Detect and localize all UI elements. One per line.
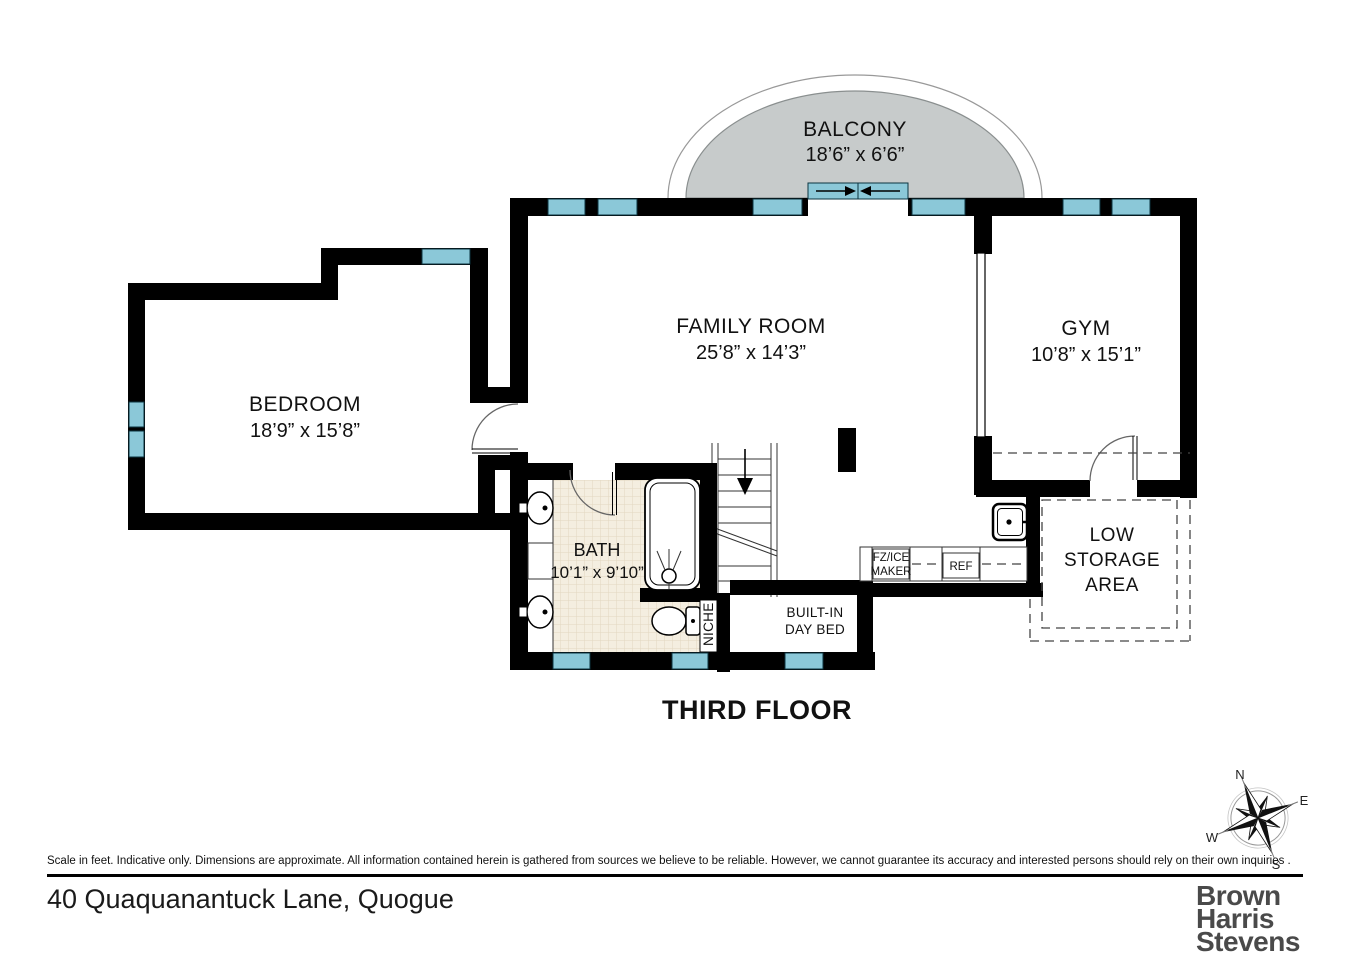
floor-plan-drawing: BALCONY 18’6” x 6’6” [0,0,1350,956]
floor-plan-page: BALCONY 18’6” x 6’6” [0,0,1350,956]
compass-east-label: E [1300,793,1309,808]
wall-segment [700,463,717,603]
window [422,249,470,264]
low-storage-label-3: AREA [1085,575,1139,596]
wall-segment [128,513,528,530]
niche-label: NICHE [701,602,716,646]
window [129,402,144,427]
sink-drain [543,610,548,615]
family-room-dims: 25’8” x 14’3” [696,342,806,364]
family-room-name: FAMILY ROOM [676,315,825,338]
sink-icon [527,492,553,524]
floor-title: THIRD FLOOR [662,695,852,725]
wall-segment [1137,480,1180,497]
day-bed-label-2: DAY BED [785,622,845,637]
bedroom-dims: 18’9” x 15’8” [250,420,360,442]
wall-segment [478,470,495,520]
window [753,199,802,215]
brand-line: Stevens [1196,930,1300,953]
low-storage-label-1: LOW [1090,525,1135,546]
wall-segment [838,428,856,472]
window [912,199,965,215]
wall-segment [470,248,488,403]
wall-segment [976,480,1090,497]
gym-name: GYM [1061,317,1110,340]
window [548,199,585,215]
wall-segment [860,583,1043,597]
bedroom-name: BEDROOM [249,393,361,416]
window [129,431,144,457]
window [553,653,590,669]
bar-sink-drain [1006,519,1011,524]
sink-faucet [519,607,527,617]
wet-bar-counter: FZ/ICE MAKER REF [860,504,1030,581]
window [1112,199,1150,215]
gym-dims: 10’8” x 15’1” [1031,344,1141,366]
balcony-dims: 18’6” x 6’6” [806,144,905,166]
toilet-tank-dot [691,619,695,623]
compass-west-label: W [1206,830,1219,845]
wall-segment [974,216,992,254]
window [785,653,823,669]
property-address: 40 Quaquanantuck Lane, Quogue [47,884,454,915]
wall-segment [730,580,873,595]
sink-icon [527,596,553,628]
disclaimer-text: Scale in feet. Indicative only. Dimensio… [47,855,1303,867]
low-storage-label-2: STORAGE [1064,550,1160,571]
window [1063,199,1100,215]
stairs-down-arrowhead [737,478,753,495]
wall-segment [857,595,873,655]
partition-thin-wall [977,253,985,437]
sink-faucet [519,503,527,513]
sliding-door-opening [808,198,908,216]
bath-dims: 10’1” x 9’10” [550,563,644,582]
shower-head-icon [662,569,676,583]
ref-label: REF [950,561,973,573]
wall-segment [510,198,528,403]
sink-drain [543,506,548,511]
brown-harris-stevens-logo: Brown Harris Stevens [1196,884,1300,953]
balcony: BALCONY 18’6” x 6’6” [668,75,1042,198]
window [672,653,708,669]
footer-divider [47,874,1303,877]
bath-name: BATH [574,540,621,560]
window [598,199,637,215]
bedroom-door-arc [472,404,518,450]
staircase [712,443,777,597]
day-bed-label-1: BUILT-IN [787,605,844,620]
compass-north-label: N [1235,767,1244,782]
fzice-label-2: MAKER [871,566,912,578]
wall-segment [510,452,528,654]
wall-segment [974,436,992,495]
wall-segment [128,283,338,300]
storage-door-arc [1090,436,1135,481]
balcony-name: BALCONY [803,118,907,141]
toilet-icon [652,607,686,635]
fzice-label-1: FZ/ICE [873,552,910,564]
sliding-door [808,183,908,216]
